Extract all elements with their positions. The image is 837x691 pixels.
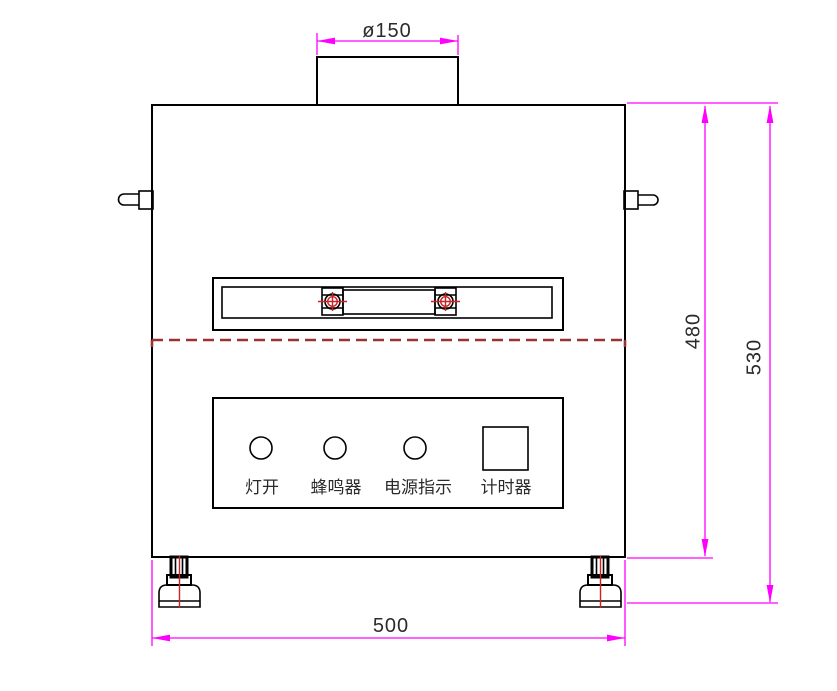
slot-center-plate (343, 290, 435, 314)
body-width-label: 500 (373, 615, 409, 637)
door-hinge-dashed-line (152, 340, 625, 347)
left-handle-pin (119, 194, 139, 205)
buzzer-label: 蜂鸣器 (311, 478, 362, 497)
burn-test-chamber-front-view: ø150 480 530 500 灯开 蜂鸣器 电源指示 计时器 (0, 0, 837, 691)
timer-label: 计时器 (481, 478, 532, 497)
arrow-right-chimney (440, 38, 458, 45)
apparatus-outlines (119, 57, 659, 607)
left-handle-bracket (139, 191, 153, 209)
chimney-diameter-label: ø150 (362, 20, 412, 42)
chimney-outline (317, 57, 458, 105)
right-handle-pin (638, 195, 658, 205)
timer-display (483, 427, 528, 470)
buzzer-indicator (324, 437, 346, 459)
specimen-slot (213, 278, 563, 330)
control-panel-labels: 灯开 蜂鸣器 电源指示 计时器 (245, 478, 532, 497)
arrow-left-chimney (317, 38, 335, 45)
body-height-label: 480 (682, 313, 704, 349)
engineering-drawing-page: ø150 480 530 500 灯开 蜂鸣器 电源指示 计时器 (0, 0, 837, 691)
left-handle (119, 191, 153, 209)
slot-outer-frame (213, 278, 563, 330)
lamp-switch (250, 437, 272, 459)
arrow-480-bottom (702, 539, 709, 557)
arrow-500-right (607, 635, 625, 642)
total-height-label: 530 (743, 339, 765, 375)
power-indicator-label: 电源指示 (384, 478, 452, 497)
arrow-530-bottom (767, 585, 774, 603)
right-handle-bracket (624, 191, 638, 209)
arrow-500-left (152, 635, 170, 642)
arrow-530-top (767, 105, 774, 123)
right-handle (624, 191, 658, 209)
power-indicator (404, 437, 426, 459)
arrow-480-top (702, 105, 709, 123)
lamp-switch-label: 灯开 (245, 478, 279, 497)
